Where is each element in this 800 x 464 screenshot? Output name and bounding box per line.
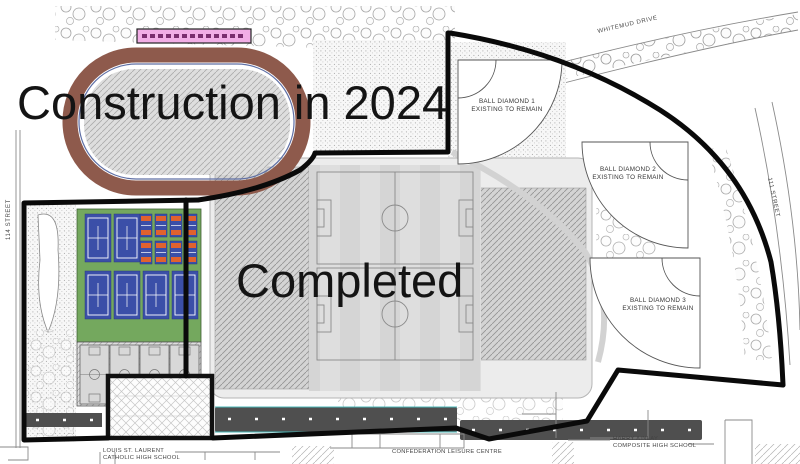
louis-school-label-line2: CATHOLIC HIGH SCHOOL bbox=[103, 455, 181, 461]
ball-diamond-1-label: BALL DIAMOND 1 bbox=[479, 98, 535, 105]
parking-lot bbox=[108, 376, 212, 438]
ball-diamond-1-status: EXISTING TO REMAIN bbox=[471, 106, 542, 113]
hatch-strip-1 bbox=[292, 446, 334, 464]
tennis-court bbox=[114, 214, 140, 262]
east-hatched-field bbox=[480, 188, 586, 360]
site-plan-map: Construction in 2024 Completed WHITEMUD … bbox=[0, 0, 800, 464]
grandstand-building bbox=[137, 29, 251, 43]
tennis-court bbox=[85, 214, 111, 262]
pickleball-court bbox=[170, 214, 182, 237]
pickleball-court bbox=[155, 214, 167, 237]
street-114-label: 114 STREET bbox=[6, 199, 12, 240]
pickleball-court bbox=[140, 241, 152, 264]
tennis-court bbox=[85, 271, 111, 319]
court-block bbox=[77, 209, 201, 342]
completed-zone-label: Completed bbox=[236, 254, 463, 307]
pickleball-court bbox=[155, 241, 167, 264]
pickleball-court bbox=[140, 214, 152, 237]
ball-diamond-3-status: EXISTING TO REMAIN bbox=[622, 305, 693, 312]
pickleball-court bbox=[170, 241, 182, 264]
ball-diamond-2-label: BALL DIAMOND 2 bbox=[600, 166, 656, 173]
hatch-strip-3 bbox=[755, 444, 800, 464]
louis-school-label-line1: LOUIS ST. LAURENT bbox=[103, 448, 164, 454]
construction-zone-label: Construction in 2024 bbox=[17, 76, 448, 129]
tennis-court bbox=[143, 271, 169, 319]
harry-ainlay-label-line2: COMPOSITE HIGH SCHOOL bbox=[613, 443, 697, 449]
harry-ainlay-label-line1: HARRY AINLAY bbox=[613, 436, 658, 442]
tennis-court bbox=[114, 271, 140, 319]
hatch-strip-2 bbox=[552, 442, 574, 464]
leisure-centre-label: CONFEDERATION LEISURE CENTRE bbox=[392, 449, 502, 455]
basketball-court bbox=[80, 345, 109, 404]
site-plan-page: Construction in 2024 Completed WHITEMUD … bbox=[0, 0, 800, 464]
parking-outline bbox=[108, 376, 212, 438]
ball-diamond-3-label: BALL DIAMOND 3 bbox=[630, 297, 686, 304]
ball-diamond-2-status: EXISTING TO REMAIN bbox=[592, 174, 663, 181]
